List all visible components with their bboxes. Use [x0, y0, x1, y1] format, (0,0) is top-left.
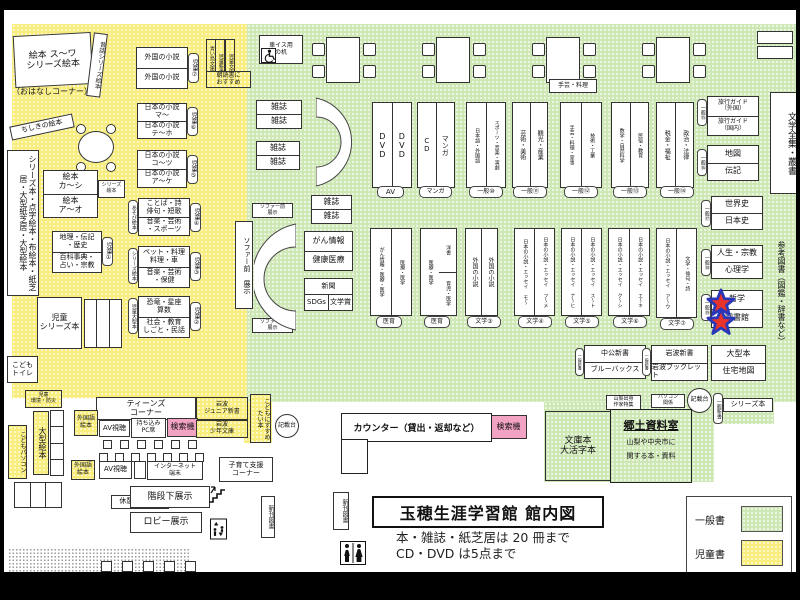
- mini-shelf: [50, 410, 64, 476]
- floor-map: 絵本 ス〜ワシリーズ絵本昔話シリーズ絵本（おはなしコーナー）ちしきの絵本外国の小…: [4, 10, 796, 572]
- shelf-iryo-1: がん情報・医療・医学医療・医学: [370, 228, 412, 316]
- chair: [188, 440, 197, 449]
- shelf-jido3: ペット・料理料理・車音楽・芸術・保健: [138, 246, 190, 288]
- reading-table-2: [436, 37, 470, 83]
- chair: [101, 561, 112, 572]
- kyodo-shiryo-line2: 関する本・資料: [611, 451, 691, 461]
- wheelchair-icon: [261, 48, 276, 63]
- map-title: 玉穂生涯学習館 館内図: [372, 496, 604, 528]
- tag-jido6: 児童⑥: [187, 107, 198, 136]
- tag-av: AV: [377, 186, 404, 198]
- shelf-av: DVDDVD: [372, 102, 412, 188]
- tag-shinsho-series: 一般新書: [713, 393, 723, 424]
- chair: [532, 65, 545, 78]
- chair: [312, 43, 325, 56]
- booth-blank: [134, 461, 146, 479]
- chair: [532, 43, 545, 56]
- reading-table: [436, 37, 470, 83]
- library-floor-map-screenshot: { "title": { "main": "玉穂生涯学習館 館内図", "not…: [0, 0, 800, 600]
- children-books-swatch: [741, 540, 783, 566]
- shelf-ryoko-guide: 旅行ガイド（外国）旅行ガイド（国内）: [707, 96, 759, 136]
- tag-manga: マンガ: [419, 186, 452, 198]
- sofa-crescent-mid: [254, 223, 296, 331]
- gan-joho: がん情報健康医療: [304, 231, 353, 271]
- teens-corner: ティーンズコーナー: [96, 397, 196, 420]
- shelf-jido7: 外国の小説外国の小説: [136, 47, 188, 89]
- jido-kankyo-bosai: 児童環境・防災: [25, 390, 62, 408]
- chair: [171, 440, 180, 449]
- tag-jido7: 児童⑦: [188, 53, 199, 83]
- chair: [185, 561, 196, 572]
- shelf-ippan10: 日本語・外国語スポーツ・音楽・演劇: [466, 102, 506, 188]
- chair: [422, 65, 435, 78]
- kensakuki-teens: 検索機: [167, 418, 198, 437]
- shinkan-tosho-1: 新刊図書: [261, 496, 275, 538]
- kodomo-toilet: こどもトイレ: [7, 356, 38, 383]
- shelf-jido2: 恐竜・星座算数社会・教育しごと・民話: [138, 296, 190, 338]
- lending-limit-av: CD・DVD は5点まで: [396, 543, 516, 562]
- tag-jido5: 児童⑤: [187, 155, 198, 184]
- reading-table-1: [326, 37, 360, 83]
- chair: [106, 124, 116, 134]
- asadoku-osusume: 朝読書におすすめ: [206, 71, 251, 88]
- shelf-zasshi-2: 雑誌雑誌: [256, 141, 300, 170]
- pasokon-kankei-note: パソコン関係: [651, 394, 685, 408]
- shelf-gaikokugo-ehon-1: 外国語絵本: [74, 410, 98, 436]
- av-booth-1: AV視聴: [99, 420, 130, 437]
- shelf-gaikokugo-ehon-2: 外国語絵本: [71, 460, 95, 480]
- shelf-ogata-jutaku: 大型本住宅地図: [711, 345, 766, 381]
- legend-row-children: 児童書: [695, 540, 783, 566]
- teens-chairs-1: [103, 440, 205, 447]
- sofa-tenji-1: ソファー前展示: [252, 203, 293, 218]
- kodomo-susume-bon: こどもにすすめたい本: [250, 394, 271, 443]
- service-counter-leg: [341, 439, 368, 474]
- chair: [154, 440, 163, 449]
- chair: [422, 43, 435, 56]
- shelf-ippan14: 税金・福祉政治・法律: [656, 102, 694, 188]
- kyodo-shiryo-line1: 山梨や中央市に: [611, 437, 691, 447]
- tag-iiku-2: 医育: [424, 316, 450, 328]
- shelf-iwanami-junior: 岩波ジュニア新書: [196, 397, 248, 420]
- sanko-tosho-label: 参考図書（図鑑・辞書など）: [766, 197, 787, 389]
- service-counter: カウンター（貸出・返却など）: [341, 413, 492, 442]
- tag-bungaku4: 文学④: [518, 316, 552, 328]
- chair: [583, 65, 596, 78]
- chair: [76, 124, 86, 134]
- shelf-series-bon: シリーズ本: [723, 398, 773, 412]
- reading-table: [656, 37, 690, 83]
- service-counter-label: カウンター（貸出・返却など）: [353, 421, 479, 434]
- shelf-ippan11: 芸術・美術観光・産業: [512, 102, 548, 188]
- av-booth-2: AV視聴: [99, 461, 132, 479]
- stairs-icon: [207, 484, 227, 504]
- chair: [363, 43, 376, 56]
- shelf-zasshi-3: 雑誌雑誌: [311, 195, 352, 224]
- tag-ippan18: 一般⑱: [701, 249, 711, 276]
- shelf-bungaku6: 日本の小説・エッセイ ク〜シ日本の小説・エッセイ エ〜キ: [608, 228, 650, 316]
- shelf-ippan12: 手芸・料理・家事技術・工業: [560, 102, 602, 188]
- shelf-bungaku5: 日本の小説・エッセイ ナ〜ヒ日本の小説・エッセイ ス〜ト: [561, 228, 602, 316]
- shelf-cd-manga: CDマンガ: [417, 102, 455, 188]
- shelf-ehon-su-wa: 絵本 ス〜ワシリーズ絵本: [13, 32, 94, 88]
- kyodo-shiryo-title: 郷土資料室: [611, 417, 691, 433]
- tag-ippan17: 一般⑰: [701, 200, 711, 227]
- tag-ippan14: 一般⑭: [660, 186, 694, 198]
- kisaidai-1: 記載台: [275, 414, 299, 438]
- kensakuki-counter: 検索機: [490, 415, 527, 439]
- mochikomi-pc-seat: 持ち込みPC席: [131, 418, 166, 438]
- reading-table-4: [656, 37, 690, 83]
- kosodate-corner: 子育て支援コーナー: [219, 457, 273, 482]
- chair: [106, 162, 116, 172]
- chair: [137, 440, 146, 449]
- general-books-swatch: [741, 506, 783, 532]
- shinbun: 新聞SDGs文学賞: [304, 278, 353, 311]
- rest-chairs: [101, 561, 206, 570]
- shelf-ippan13: 数学・自然科学民俗・教育: [611, 102, 649, 188]
- round-table-top: [78, 131, 114, 163]
- shelf-jido4: ことば・詩俳句・短歌音楽・芸術・スポーツ: [138, 198, 190, 236]
- chair: [642, 65, 655, 78]
- shelf-bungaku-zenshu: 文学全集・叢書: [770, 92, 796, 194]
- shelf-iwanami-shonen: 岩波少年文庫: [196, 420, 248, 438]
- tag-bungaku5: 文学⑤: [565, 316, 599, 328]
- chair: [473, 65, 486, 78]
- tag-bungaku3: 文学③: [467, 316, 501, 328]
- chair: [473, 43, 486, 56]
- shelf-chuko: 中公新書ブルーバックス: [584, 345, 646, 379]
- chair: [103, 440, 112, 449]
- tag-ippan15: 一般⑮: [697, 99, 707, 126]
- chair: [642, 43, 655, 56]
- shelf-jido6: 日本の小説マ〜日本の小説テ〜ホ: [137, 103, 187, 139]
- shelf-jido5: 日本の小説コ〜ツ日本の小説ア〜ケ: [137, 150, 187, 188]
- shelf-iwanami: 岩波新書岩波ブックレット: [651, 345, 708, 381]
- tag-jido2: 児童②: [190, 302, 201, 331]
- shelf-bungaku4: 日本の小説・エッセイ モ〜日本の小説・エッセイ フ〜メ: [514, 228, 555, 316]
- reading-table: [326, 37, 360, 83]
- yamanashi-sakka-note: 山梨出身作家特集: [606, 395, 641, 410]
- corner-shelf-1: [757, 31, 793, 44]
- shelf-sekaishi: 世界史日本史: [711, 196, 763, 230]
- tag-ippan13: 一般⑬: [613, 186, 647, 198]
- shelf-bungaku7: 日本の小説・エッセイ ア〜ウ文学・俳句・詩: [656, 228, 697, 318]
- tag-ippan12: 一般⑫: [564, 186, 598, 198]
- shelf-zasshi-1: 雑誌雑誌: [256, 100, 302, 129]
- chair: [693, 65, 706, 78]
- shelf-bunkobon: 文庫本大活字本: [545, 411, 611, 481]
- reading-table-3: [546, 37, 580, 83]
- shelf-ogata-ehon: 大型絵本: [33, 411, 49, 475]
- tag-shinsho-1: 一般新書: [575, 348, 584, 376]
- tag-series-ehon-small: シリーズ絵本: [98, 180, 125, 198]
- ohanashi-corner-label: （おはなしコーナー）: [8, 85, 96, 97]
- kaidan-tenji: 階段下展示: [130, 486, 210, 508]
- corner-shelf-2: [757, 46, 793, 59]
- shelf-chizu-denki: 地図伝記: [707, 145, 759, 181]
- shelf-iryo-2: 医療・医学洋書育児・医学: [420, 228, 457, 316]
- chair: [312, 65, 325, 78]
- kyodo-shiryo-room: 郷土資料室 山梨や中央市に 関する本・資料: [610, 409, 692, 483]
- tag-series-ehon-left: シリーズ絵本: [128, 248, 138, 284]
- shinkan-tosho-2: 新刊図書: [333, 492, 349, 530]
- shelf-jido1: 地理・伝記・歴史百科事典・占い・宗教: [52, 231, 102, 273]
- chair: [693, 43, 706, 56]
- shelf-jinsei: 人生・宗教心理学: [711, 245, 763, 279]
- chair: [583, 43, 596, 56]
- sofa-crescent-top: [316, 97, 356, 187]
- tag-shinsho-2: 一般新書: [642, 348, 651, 376]
- tag-ippan11: 一般⑪: [513, 186, 547, 198]
- kodomo-pasokon: こどもパソコン: [8, 425, 27, 479]
- legend: 一般書 児童書: [686, 496, 792, 572]
- tag-jido-ogatabon: 児童大型本: [128, 298, 138, 334]
- legend-label-children: 児童書: [695, 546, 725, 561]
- tag-ippan16: 一般⑯: [697, 149, 707, 176]
- shelf-bungaku3: 外国の小説外国の小説: [465, 228, 498, 316]
- chair: [164, 561, 175, 572]
- chair: [143, 561, 154, 572]
- shelf-strips: [84, 299, 122, 348]
- internet-tanmatsu: インターネット端末: [147, 461, 203, 480]
- shugei-ryori-note: 手芸・料理: [549, 79, 597, 93]
- legend-row-general: 一般書: [695, 506, 783, 532]
- elevator-icon: [210, 518, 227, 540]
- round-table: [74, 128, 118, 166]
- chair: [363, 65, 376, 78]
- tag-jido3: 児童③: [190, 252, 201, 281]
- restroom-icon: [340, 541, 366, 565]
- chair: [122, 561, 133, 572]
- shelf-ehon-ka-shi: 絵本カ〜シ絵本ア〜オ: [43, 170, 98, 218]
- tag-iiku-1: 医育: [376, 316, 402, 328]
- legend-label-general: 一般書: [695, 512, 725, 527]
- tag-bungaku7: 文学⑦: [660, 318, 694, 330]
- sofa-tenji-tall: ソファー前 展示: [235, 221, 253, 309]
- shelf-jido-series: 児童シリーズ本: [37, 297, 82, 349]
- tag-jido4: 児童④: [190, 203, 201, 232]
- chair: [120, 440, 129, 449]
- teens-chairs-2: [99, 453, 211, 460]
- reading-table: [546, 37, 580, 83]
- tag-asobi-ehon: あそび絵本: [128, 200, 138, 234]
- shelf-series-tenji: シリーズ本・点字絵本・布絵本・紙芝居・大型紙芝居・大型絵本: [7, 150, 39, 296]
- lobby-tenji: ロビー展示: [130, 512, 202, 533]
- tag-jido1: 児童①: [102, 237, 113, 266]
- location-star-2: [706, 307, 736, 337]
- tag-ippan10: 一般⑩: [469, 186, 503, 198]
- tag-bungaku6: 文学⑥: [613, 316, 647, 328]
- bench: [14, 482, 62, 508]
